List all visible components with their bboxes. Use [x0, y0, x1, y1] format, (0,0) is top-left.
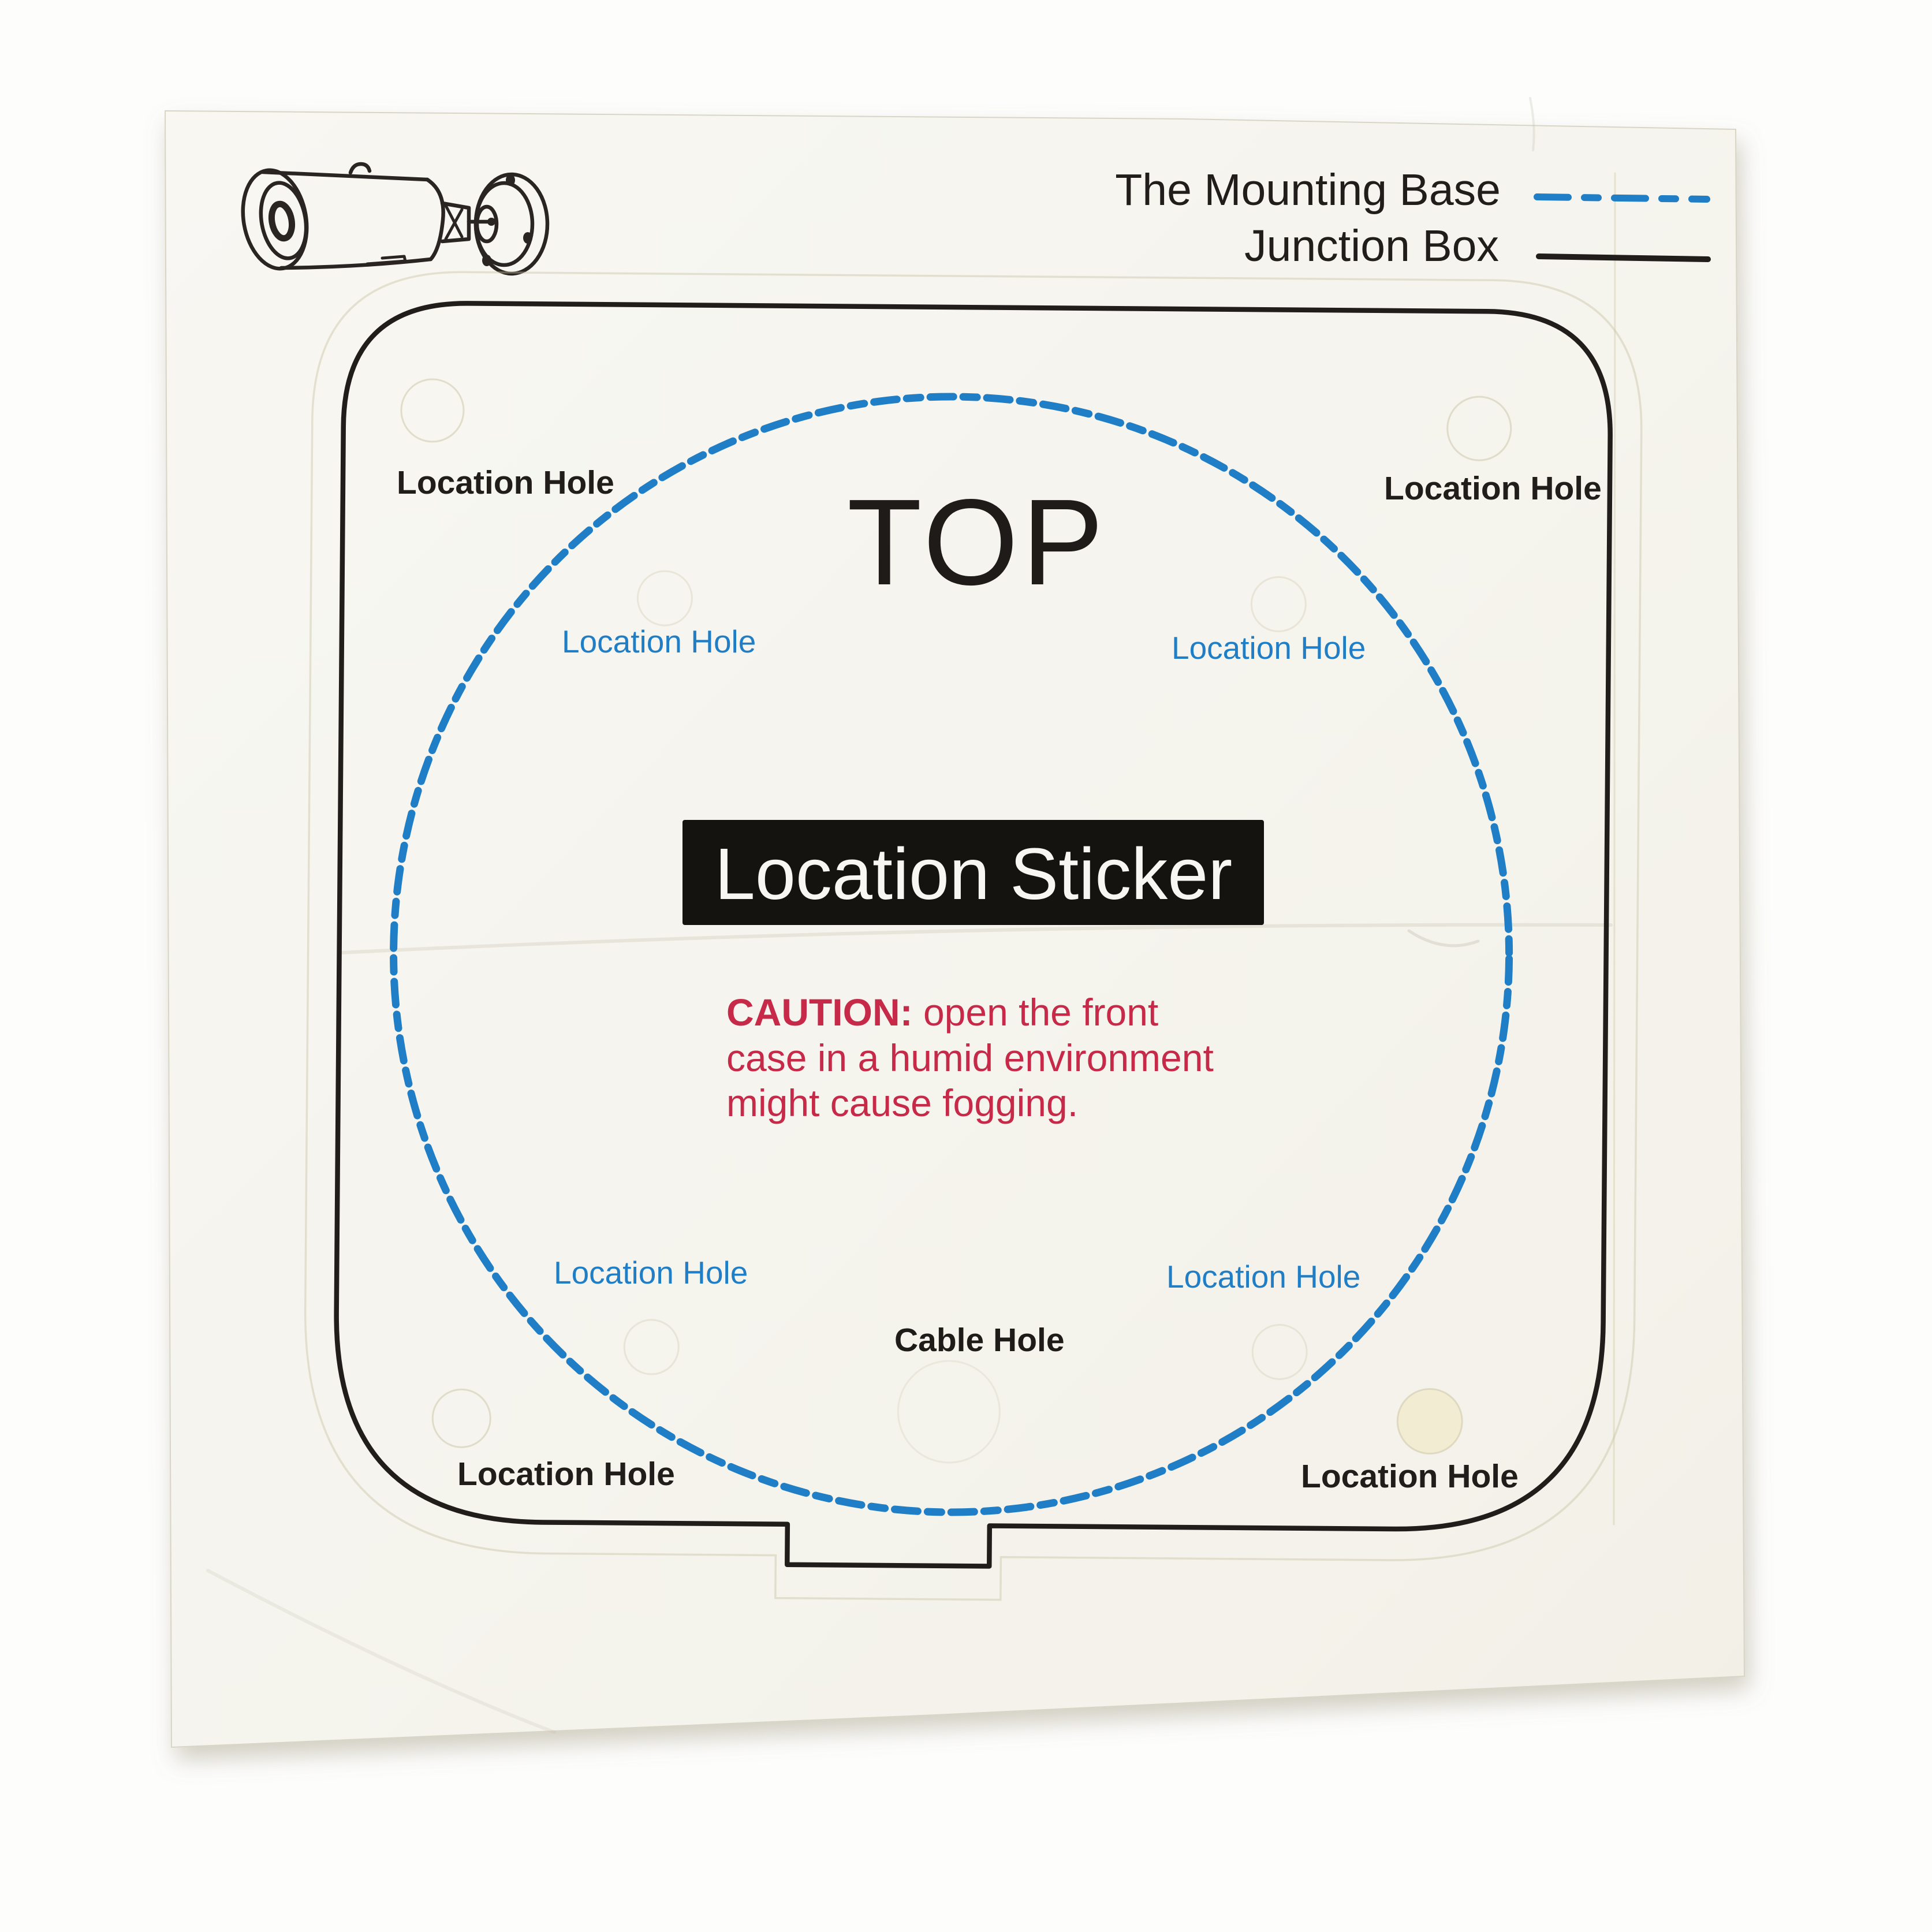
base-label-bottom-left: Location Hole — [554, 1255, 748, 1291]
caution-line-2: case in a humid environment — [726, 1036, 1214, 1079]
base-label-bottom-right: Location Hole — [1166, 1259, 1360, 1295]
sticker-scene: The Mounting Base Junction Box TOP Locat… — [0, 0, 1932, 1932]
legend-mounting-base-label: The Mounting Base — [1115, 165, 1501, 215]
caution-prefix: CAUTION: — [726, 991, 913, 1034]
caution-line-1-rest: open the front — [913, 991, 1159, 1034]
cable-hole-label: Cable Hole — [894, 1322, 1065, 1359]
corner-label-bottom-right: Location Hole — [1301, 1458, 1519, 1495]
title-text: Location Sticker — [715, 833, 1232, 915]
corner-hole-cut-bottom-right — [1397, 1389, 1463, 1454]
legend-junction-box-label: Junction Box — [1244, 221, 1499, 271]
caution-line-3: might cause fogging. — [726, 1081, 1078, 1124]
location-sticker-photo: The Mounting Base Junction Box TOP Locat… — [0, 0, 1932, 1932]
legend-junction-box-line-sample — [1539, 256, 1708, 259]
corner-label-top-right: Location Hole — [1384, 470, 1602, 507]
base-label-top-right: Location Hole — [1172, 630, 1366, 666]
corner-label-bottom-left: Location Hole — [457, 1456, 675, 1493]
caution-line-1: CAUTION: open the front — [726, 991, 1158, 1034]
orientation-top-label: TOP — [847, 473, 1107, 610]
title-plate: Location Sticker — [682, 820, 1264, 925]
base-label-top-left: Location Hole — [562, 624, 756, 659]
corner-label-top-left: Location Hole — [397, 464, 614, 501]
